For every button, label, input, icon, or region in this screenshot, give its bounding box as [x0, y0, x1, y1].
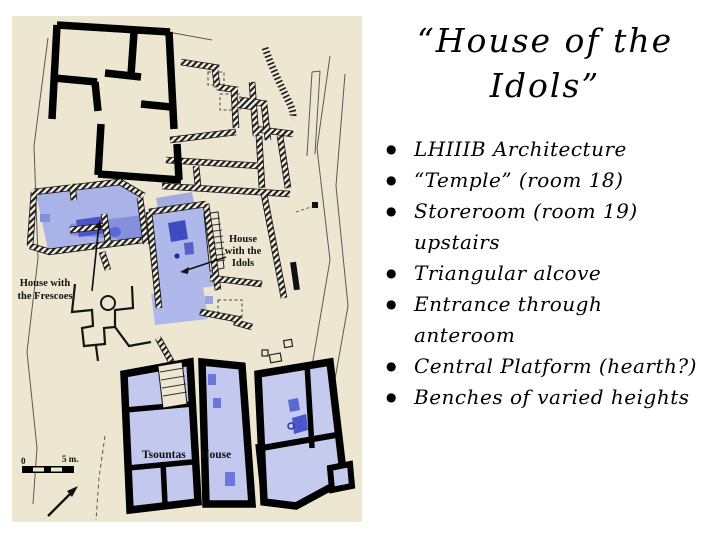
bullet-item: ● LHIIIB Architecture: [386, 134, 712, 165]
survey-marker: [312, 202, 318, 208]
idols-label-line2: with the: [225, 246, 262, 257]
bullet-dot: ●: [386, 382, 414, 413]
slide-title-line2: Idols”: [378, 63, 712, 108]
bullet-text: Storeroom (room 19) upstairs: [414, 196, 638, 258]
bullet-dot: ●: [386, 351, 414, 382]
bullet-text: Triangular alcove: [414, 258, 601, 289]
bullet-item: ● “Temple” (room 18): [386, 165, 712, 196]
bullet-dot: ●: [386, 134, 414, 165]
slide-title-line1: “House of the: [378, 18, 712, 63]
bullet-text: Central Platform (hearth?): [414, 351, 697, 382]
bullet-item: ● Benches of varied heights: [386, 382, 712, 413]
tsountas-house: [124, 362, 352, 510]
scale-zero-label: 0: [21, 456, 26, 466]
bullet-item: ● Central Platform (hearth?): [386, 351, 712, 382]
scale-five-label: 5 m.: [62, 454, 79, 464]
idols-label-line3: Idols: [232, 258, 254, 269]
bullet-dot: ●: [386, 258, 414, 289]
bullet-dot: ●: [386, 165, 414, 196]
idols-label-line1: House: [229, 234, 257, 245]
site-plan-image: House with the Idols House with the Fres…: [12, 16, 362, 522]
tsountas-staircase: [158, 362, 187, 408]
bullet-text: Benches of varied heights: [414, 382, 690, 413]
slide-title: “House of the Idols”: [378, 18, 712, 108]
bullet-item: ● Entrance through anteroom: [386, 289, 712, 351]
label-tsountas-house: Tsountas House: [142, 449, 231, 461]
frescoes-label-line1: House with: [20, 278, 71, 289]
bullet-text: “Temple” (room 18): [414, 165, 623, 196]
bullet-dot: ●: [386, 289, 414, 320]
bullet-list: ● LHIIIB Architecture ● “Temple” (room 1…: [386, 134, 712, 413]
slide: House with the Idols House with the Fres…: [0, 0, 720, 540]
bullet-item: ● Triangular alcove: [386, 258, 712, 289]
bullet-text: LHIIIB Architecture: [414, 134, 627, 165]
bullet-text: Entrance through anteroom: [414, 289, 602, 351]
bullet-dot: ●: [386, 196, 414, 227]
bullet-item: ● Storeroom (room 19) upstairs: [386, 196, 712, 258]
frescoes-label-line2: the Frescoes: [18, 291, 73, 302]
